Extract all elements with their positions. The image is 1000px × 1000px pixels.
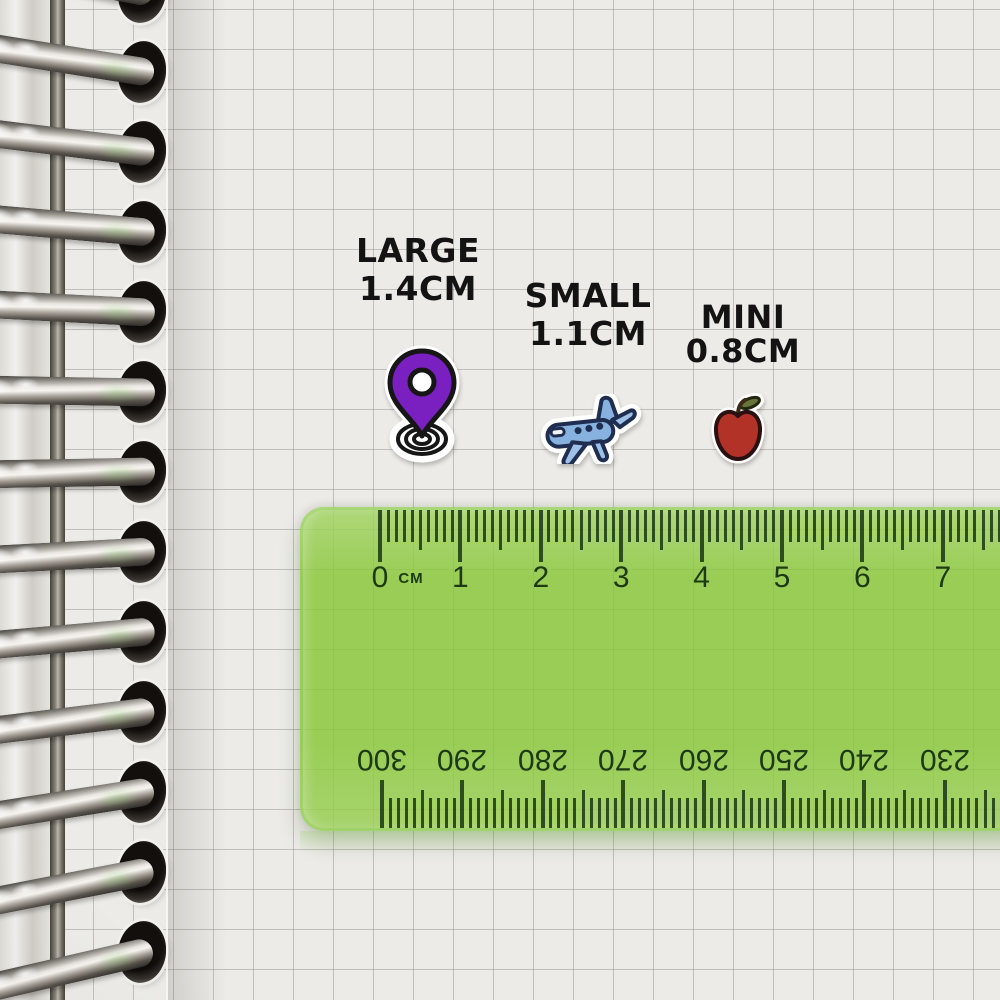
ruler-tick: [636, 510, 639, 542]
ruler-tick: [380, 780, 384, 828]
ruler-tick: [839, 798, 842, 828]
ruler-tick: [791, 798, 794, 828]
ruler-tick: [758, 798, 761, 828]
ruler-tick: [467, 510, 470, 542]
ruler-tick: [523, 510, 526, 542]
ruler-cm-number: 2: [532, 561, 549, 595]
ruler-tick: [606, 798, 609, 828]
ruler-tick: [571, 510, 574, 542]
ruler-tick: [644, 510, 647, 542]
ruler-tick: [925, 510, 928, 542]
ruler-tick: [421, 790, 424, 828]
ruler-tick: [565, 798, 568, 828]
ruler-cm-number: 4: [693, 561, 710, 595]
ruler-cm-number: 0: [372, 561, 389, 595]
ruler-tick: [525, 798, 528, 828]
ruler-tick: [515, 510, 518, 542]
ruler-mm-number: 230: [920, 743, 970, 775]
ruler-tick: [694, 798, 697, 828]
ruler-tick: [990, 510, 993, 542]
ruler-tick: [491, 510, 494, 542]
spiral-ring: [0, 375, 155, 406]
ruler-tick: [435, 510, 438, 542]
ruler-tick: [724, 510, 727, 542]
airplane-sticker: [541, 394, 645, 464]
ruler-tick: [549, 798, 552, 828]
ruler-tick: [501, 790, 504, 828]
ruler-tick: [756, 510, 759, 542]
ruler-tick: [702, 780, 706, 828]
ruler-tick: [903, 790, 906, 828]
ruler-tick: [493, 798, 496, 828]
ruler-tick: [710, 798, 713, 828]
ruler-tick: [807, 798, 810, 828]
ruler-tick: [686, 798, 689, 828]
ruler-tick: [598, 798, 601, 828]
ruler-tick: [582, 790, 585, 828]
size-label-large-value: 1.4CM: [338, 270, 498, 308]
ruler-tick: [652, 510, 655, 542]
ruler-tick: [389, 798, 392, 828]
ruler-tick: [509, 798, 512, 828]
ruler-tick: [821, 510, 824, 550]
ruler-tick: [678, 798, 681, 828]
ruler-tick: [967, 798, 970, 828]
ruler-tick: [419, 510, 422, 550]
ruler-tick: [823, 790, 826, 828]
ruler-cm-number: 7: [934, 561, 951, 595]
ruler-tick: [959, 798, 962, 828]
ruler-tick: [630, 798, 633, 828]
ruler-tick: [740, 510, 743, 550]
ruler-tick: [580, 510, 583, 550]
ruler-tick: [764, 510, 767, 542]
ruler-mm-number: 240: [839, 743, 889, 775]
ruler-tick: [734, 798, 737, 828]
ruler-tick: [845, 510, 848, 542]
ruler-tick: [742, 790, 745, 828]
location-pin-sticker: [384, 343, 460, 463]
ruler-tick: [871, 798, 874, 828]
spiral-ring: [0, 458, 155, 489]
ruler-tick: [893, 510, 896, 542]
size-label-large-name: LARGE: [338, 232, 498, 270]
ruler-mm-number: 260: [679, 743, 729, 775]
ruler-tick: [477, 798, 480, 828]
ruler-tick: [847, 798, 850, 828]
ruler-tick: [437, 798, 440, 828]
ruler-tick: [427, 510, 430, 542]
ruler-tick: [646, 798, 649, 828]
ruler-tick: [531, 510, 534, 542]
ruler-tick: [862, 780, 866, 828]
ruler-tick: [895, 798, 898, 828]
spiral-binding: [0, 0, 180, 1000]
ruler-tick: [917, 510, 920, 542]
ruler-tick: [654, 798, 657, 828]
ruler-tick: [387, 510, 390, 542]
ruler-unit-label: CM: [398, 567, 423, 591]
ruler-tick: [453, 798, 456, 828]
ruler-tick: [670, 798, 673, 828]
ruler-cm-number: 5: [774, 561, 791, 595]
ruler-sheen: [300, 507, 1000, 831]
ruler-tick: [927, 798, 930, 828]
ruler-tick: [951, 798, 954, 828]
green-ruler: 01234567CM300290280270260250240230: [300, 507, 1000, 831]
ruler-tick: [485, 798, 488, 828]
ruler-tick: [413, 798, 416, 828]
ruler-tick: [596, 510, 599, 542]
ruler-tick: [750, 798, 753, 828]
ruler-tick: [984, 790, 987, 828]
ruler-tick: [668, 510, 671, 542]
ruler-tick: [774, 798, 777, 828]
ruler-tick: [901, 510, 904, 550]
ruler-reflection: [300, 831, 1000, 853]
ruler-mm-number: 250: [759, 743, 809, 775]
ruler-tick: [782, 780, 786, 828]
ruler-mm-number: 290: [437, 743, 487, 775]
size-label-mini-name: MINI: [663, 300, 823, 334]
ruler-tick: [604, 510, 607, 542]
ruler-tick: [813, 510, 816, 542]
ruler-tick: [628, 510, 631, 542]
ruler-cm-number: 3: [613, 561, 630, 595]
ruler-tick: [588, 510, 591, 542]
ruler-tick: [676, 510, 679, 542]
ruler-tick: [943, 780, 947, 828]
ruler-tick: [499, 510, 502, 550]
ruler-tick: [684, 510, 687, 542]
ruler-tick: [935, 798, 938, 828]
ruler-mm-number: 300: [357, 743, 407, 775]
ruler-tick: [539, 510, 543, 562]
ruler-tick: [475, 510, 478, 542]
ruler-tick: [395, 510, 398, 542]
apple-body: [716, 412, 760, 459]
ruler-tick: [911, 798, 914, 828]
ruler-tick: [563, 510, 566, 542]
size-label-small-value: 1.1CM: [508, 315, 668, 353]
ruler-tick: [716, 510, 719, 542]
ruler-tick: [700, 510, 704, 562]
ruler-tick: [483, 510, 486, 542]
ruler-tick: [973, 510, 976, 542]
ruler-tick: [831, 798, 834, 828]
ruler-tick: [748, 510, 751, 542]
ruler-tick: [919, 798, 922, 828]
ruler-tick: [829, 510, 832, 542]
ruler-tick: [799, 798, 802, 828]
ruler-tick: [869, 510, 872, 542]
ruler-tick: [855, 798, 858, 828]
ruler-tick: [660, 510, 663, 550]
ruler-tick: [949, 510, 952, 542]
ruler-mm-number: 280: [518, 743, 568, 775]
ruler-tick: [621, 780, 625, 828]
size-label-small: SMALL 1.1CM: [508, 277, 668, 353]
ruler-tick: [405, 798, 408, 828]
ruler-tick: [975, 798, 978, 828]
ruler-tick: [378, 510, 382, 562]
ruler-tick: [805, 510, 808, 542]
ruler-tick: [397, 798, 400, 828]
size-label-mini-value: 0.8CM: [663, 334, 823, 368]
ruler-tick: [885, 510, 888, 542]
ruler-tick: [429, 798, 432, 828]
ruler-tick: [853, 510, 856, 542]
ruler-cm-number: 6: [854, 561, 871, 595]
ruler-tick: [507, 510, 510, 542]
ruler-mm-number: 270: [598, 743, 648, 775]
ruler-tick: [469, 798, 472, 828]
size-label-large: LARGE 1.4CM: [338, 232, 498, 308]
ruler-tick: [879, 798, 882, 828]
ruler-tick: [780, 510, 784, 562]
ruler-tick: [732, 510, 735, 542]
ruler-tick: [547, 510, 550, 542]
ruler-tick: [411, 510, 414, 542]
ruler-tick: [772, 510, 775, 542]
ruler-tick: [877, 510, 880, 542]
ruler-tick: [612, 510, 615, 542]
ruler-tick: [445, 798, 448, 828]
ruler-tick: [860, 510, 864, 562]
plane-cockpit-window: [551, 428, 565, 436]
ruler-tick: [403, 510, 406, 542]
apple-sticker: [710, 392, 766, 468]
ruler-cm-number: 1: [452, 561, 469, 595]
ruler-tick: [555, 510, 558, 542]
ruler-tick: [517, 798, 520, 828]
ruler-tick: [797, 510, 800, 542]
ruler-tick: [692, 510, 695, 542]
ruler-tick: [766, 798, 769, 828]
ruler-tick: [662, 790, 665, 828]
pin-center-dot: [410, 370, 434, 394]
size-label-small-name: SMALL: [508, 277, 668, 315]
ruler-tick: [789, 510, 792, 542]
ruler-tick: [909, 510, 912, 542]
ruler-tick: [541, 780, 545, 828]
size-label-mini: MINI 0.8CM: [663, 300, 823, 368]
notebook-photo: LARGE 1.4CM SMALL 1.1CM MINI 0.8CM: [0, 0, 1000, 1000]
ruler-tick: [458, 510, 462, 562]
ruler-tick: [718, 798, 721, 828]
ruler-tick: [957, 510, 960, 542]
ruler-tick: [837, 510, 840, 542]
ruler-tick: [460, 780, 464, 828]
ruler-tick: [590, 798, 593, 828]
ruler-tick: [965, 510, 968, 542]
ruler-tick: [708, 510, 711, 542]
ruler-tick: [982, 510, 985, 550]
ruler-tick: [557, 798, 560, 828]
ruler-tick: [614, 798, 617, 828]
ruler-tick: [992, 798, 995, 828]
ruler-tick: [933, 510, 936, 542]
ruler-tick: [443, 510, 446, 542]
ruler-tick: [887, 798, 890, 828]
ruler-tick: [941, 510, 945, 562]
ruler-tick: [815, 798, 818, 828]
ruler-tick: [619, 510, 623, 562]
ruler-tick: [573, 798, 576, 828]
ruler-tick: [638, 798, 641, 828]
ruler-tick: [726, 798, 729, 828]
ruler-tick: [533, 798, 536, 828]
ruler-tick: [451, 510, 454, 542]
